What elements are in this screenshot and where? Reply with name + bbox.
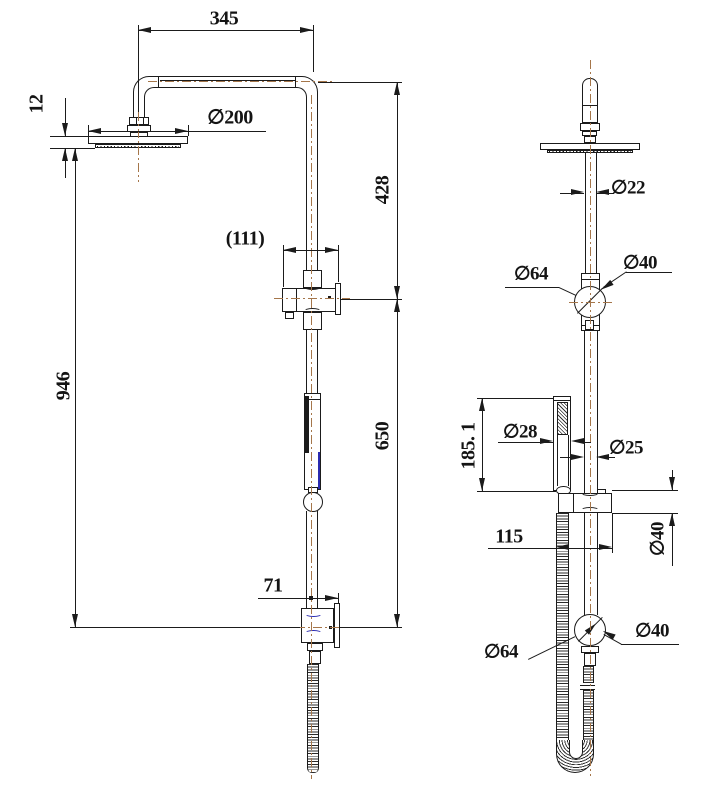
ext-line [340,627,402,628]
hose-short [583,666,595,683]
hand-shower-inner [557,435,558,486]
dim-head-diameter: ∅200 [207,105,252,130]
shower-hose [307,664,319,773]
column-centerline [311,95,312,779]
diverter-tab [285,312,294,319]
drawing-canvas: 345 ∅200 12 946 (111) [0,0,705,789]
bracket-tab [597,489,606,494]
arrow [72,614,78,627]
ball-joint [303,492,323,512]
arrow [138,27,151,33]
arrow [325,595,338,601]
arrow [571,189,584,195]
arrow [300,27,313,33]
hand-shower-blue-edge [318,452,320,489]
dim-arm-span: 345 [210,8,239,31]
dim-handset-length: 185. 1 [458,423,481,470]
side-centerline [590,60,591,776]
wall-bracket-flange [334,603,340,648]
nut-facet [136,117,137,125]
arrow [283,247,296,253]
dim-elbow-flange: ∅64 [484,641,518,664]
dim-line [584,442,591,443]
arrow [540,438,553,444]
arrow [394,299,400,312]
dim-diverter-flange: ∅64 [514,263,548,286]
dim-lower-run: 650 [372,422,395,451]
hose-right-band [583,690,595,744]
arrow [571,454,584,460]
ext-line [313,25,314,72]
dim-bottom-offset: 71 [264,575,283,598]
ext-line [50,136,88,137]
dim-head-thickness: 12 [26,95,49,114]
datum-square [309,596,313,600]
ext-line [338,593,339,604]
arrow [394,286,400,299]
arrow [596,189,609,195]
dim-bracket-diameter: ∅40 [647,522,670,556]
pipe-wall [584,331,585,493]
leader-line [559,287,577,296]
ext-line [138,25,139,112]
hose-break [580,685,595,686]
head-centerline [138,112,139,182]
pipe-wall [597,513,598,615]
arm-centerline [148,81,332,82]
ext-line [612,513,613,553]
arrow [571,438,584,444]
dim-bracket-offset: 115 [495,526,522,549]
dim-elbow-body: ∅40 [635,620,669,643]
pipe-wall [596,153,597,273]
diverter-bottom-connector [303,312,322,330]
dim-line [560,457,571,458]
riser-pipe-wall [317,511,318,608]
arrow [88,128,101,134]
riser-pipe-wall [306,330,307,394]
riser-pipe-wall [317,330,318,394]
ext-line [340,299,402,300]
dim-pipe-upper-diameter: ∅22 [611,177,645,200]
dim-pipe-lower-diameter: ∅25 [609,437,643,460]
leader-landing [505,287,559,288]
arrow [62,123,68,136]
arrow [479,478,485,491]
arrow [479,398,485,411]
pipe-wall [585,153,586,273]
ext-line [70,627,300,628]
nut-facet [143,117,144,125]
leader-landing [621,644,679,645]
arrow [394,82,400,95]
ext-line [612,490,678,491]
diverter-divider [296,288,297,312]
pipe-wall [597,331,598,493]
dim-handset-diameter: ∅28 [503,421,537,444]
ext-line [318,82,402,83]
ext-line [477,491,556,492]
arrow [596,454,609,460]
dim-diverter-width: (111) [226,228,265,251]
arrow [62,148,68,161]
hand-shower-grip [557,402,568,436]
ext-line [338,245,339,282]
riser-pipe-wall [317,119,318,270]
dim-overall-height: 946 [53,372,76,401]
arrow [556,544,569,550]
diverter-clamp-arc [304,284,321,290]
arrow [72,148,78,161]
ext-line [477,398,553,399]
bracket-clamp-arc [305,611,322,617]
hand-shower-grip-edge [304,396,309,453]
arrow [175,128,188,134]
arrow [394,614,400,627]
bracket-clamp-arc [305,630,322,636]
dim-diverter-body: ∅40 [623,252,657,275]
arrow [325,247,338,253]
arrow [669,477,675,490]
hose-u-bend-inner [569,740,584,759]
slide-bracket-divider [573,493,574,513]
hand-shower-inner [568,435,569,486]
pipe-wall [584,513,585,615]
arrow [599,280,613,292]
hose-connector [307,643,323,651]
dim-upper-run: 428 [372,176,395,205]
dim-line [397,82,398,627]
riser-pipe-wall [306,511,307,608]
arrow [599,544,612,550]
riser-pipe-wall [306,119,307,270]
